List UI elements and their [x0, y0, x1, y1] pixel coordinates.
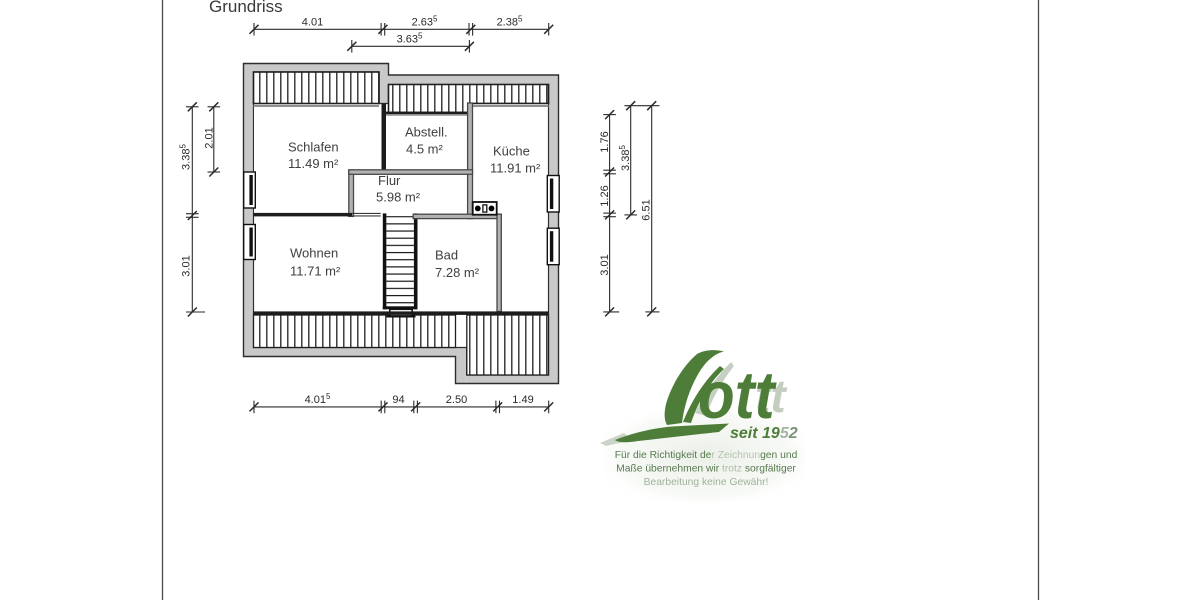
svg-text:seit 1952: seit 1952: [730, 425, 798, 442]
svg-text:3.01: 3.01: [599, 254, 611, 275]
svg-text:Bad: Bad: [435, 248, 458, 263]
svg-text:3.01: 3.01: [181, 255, 193, 276]
svg-text:Flur: Flur: [378, 173, 401, 188]
svg-text:6.51: 6.51: [641, 199, 653, 220]
svg-text:Schlafen: Schlafen: [288, 140, 339, 155]
svg-text:7.28 m²: 7.28 m²: [435, 265, 480, 280]
svg-text:5.98 m²: 5.98 m²: [376, 190, 421, 205]
svg-text:11.71 m²: 11.71 m²: [290, 264, 341, 279]
svg-text:Maße übernehmen wir trotz sorg: Maße übernehmen wir trotz sorgfältiger: [616, 464, 796, 475]
svg-text:Für die Richtigkeit der Zeichn: Für die Richtigkeit der Zeichnungen und: [615, 450, 798, 461]
svg-text:4.01: 4.01: [302, 17, 323, 29]
svg-text:ott: ott: [698, 358, 777, 433]
svg-text:1.76: 1.76: [599, 131, 611, 152]
svg-text:Abstell.: Abstell.: [405, 125, 448, 140]
svg-text:Wohnen: Wohnen: [290, 245, 338, 260]
svg-text:11.91 m²: 11.91 m²: [490, 161, 541, 176]
svg-text:4.5 m²: 4.5 m²: [406, 141, 444, 156]
svg-text:Grundriss: Grundriss: [209, 0, 283, 16]
svg-text:1.49: 1.49: [512, 394, 533, 406]
svg-text:2.01: 2.01: [204, 127, 216, 148]
svg-text:1.26: 1.26: [599, 185, 611, 206]
svg-text:Küche: Küche: [493, 144, 530, 159]
svg-text:11.49 m²: 11.49 m²: [288, 156, 339, 171]
svg-text:2.50: 2.50: [446, 394, 467, 406]
svg-text:94: 94: [392, 394, 404, 406]
svg-text:Bearbeitung keine Gewähr!: Bearbeitung keine Gewähr!: [644, 477, 769, 488]
